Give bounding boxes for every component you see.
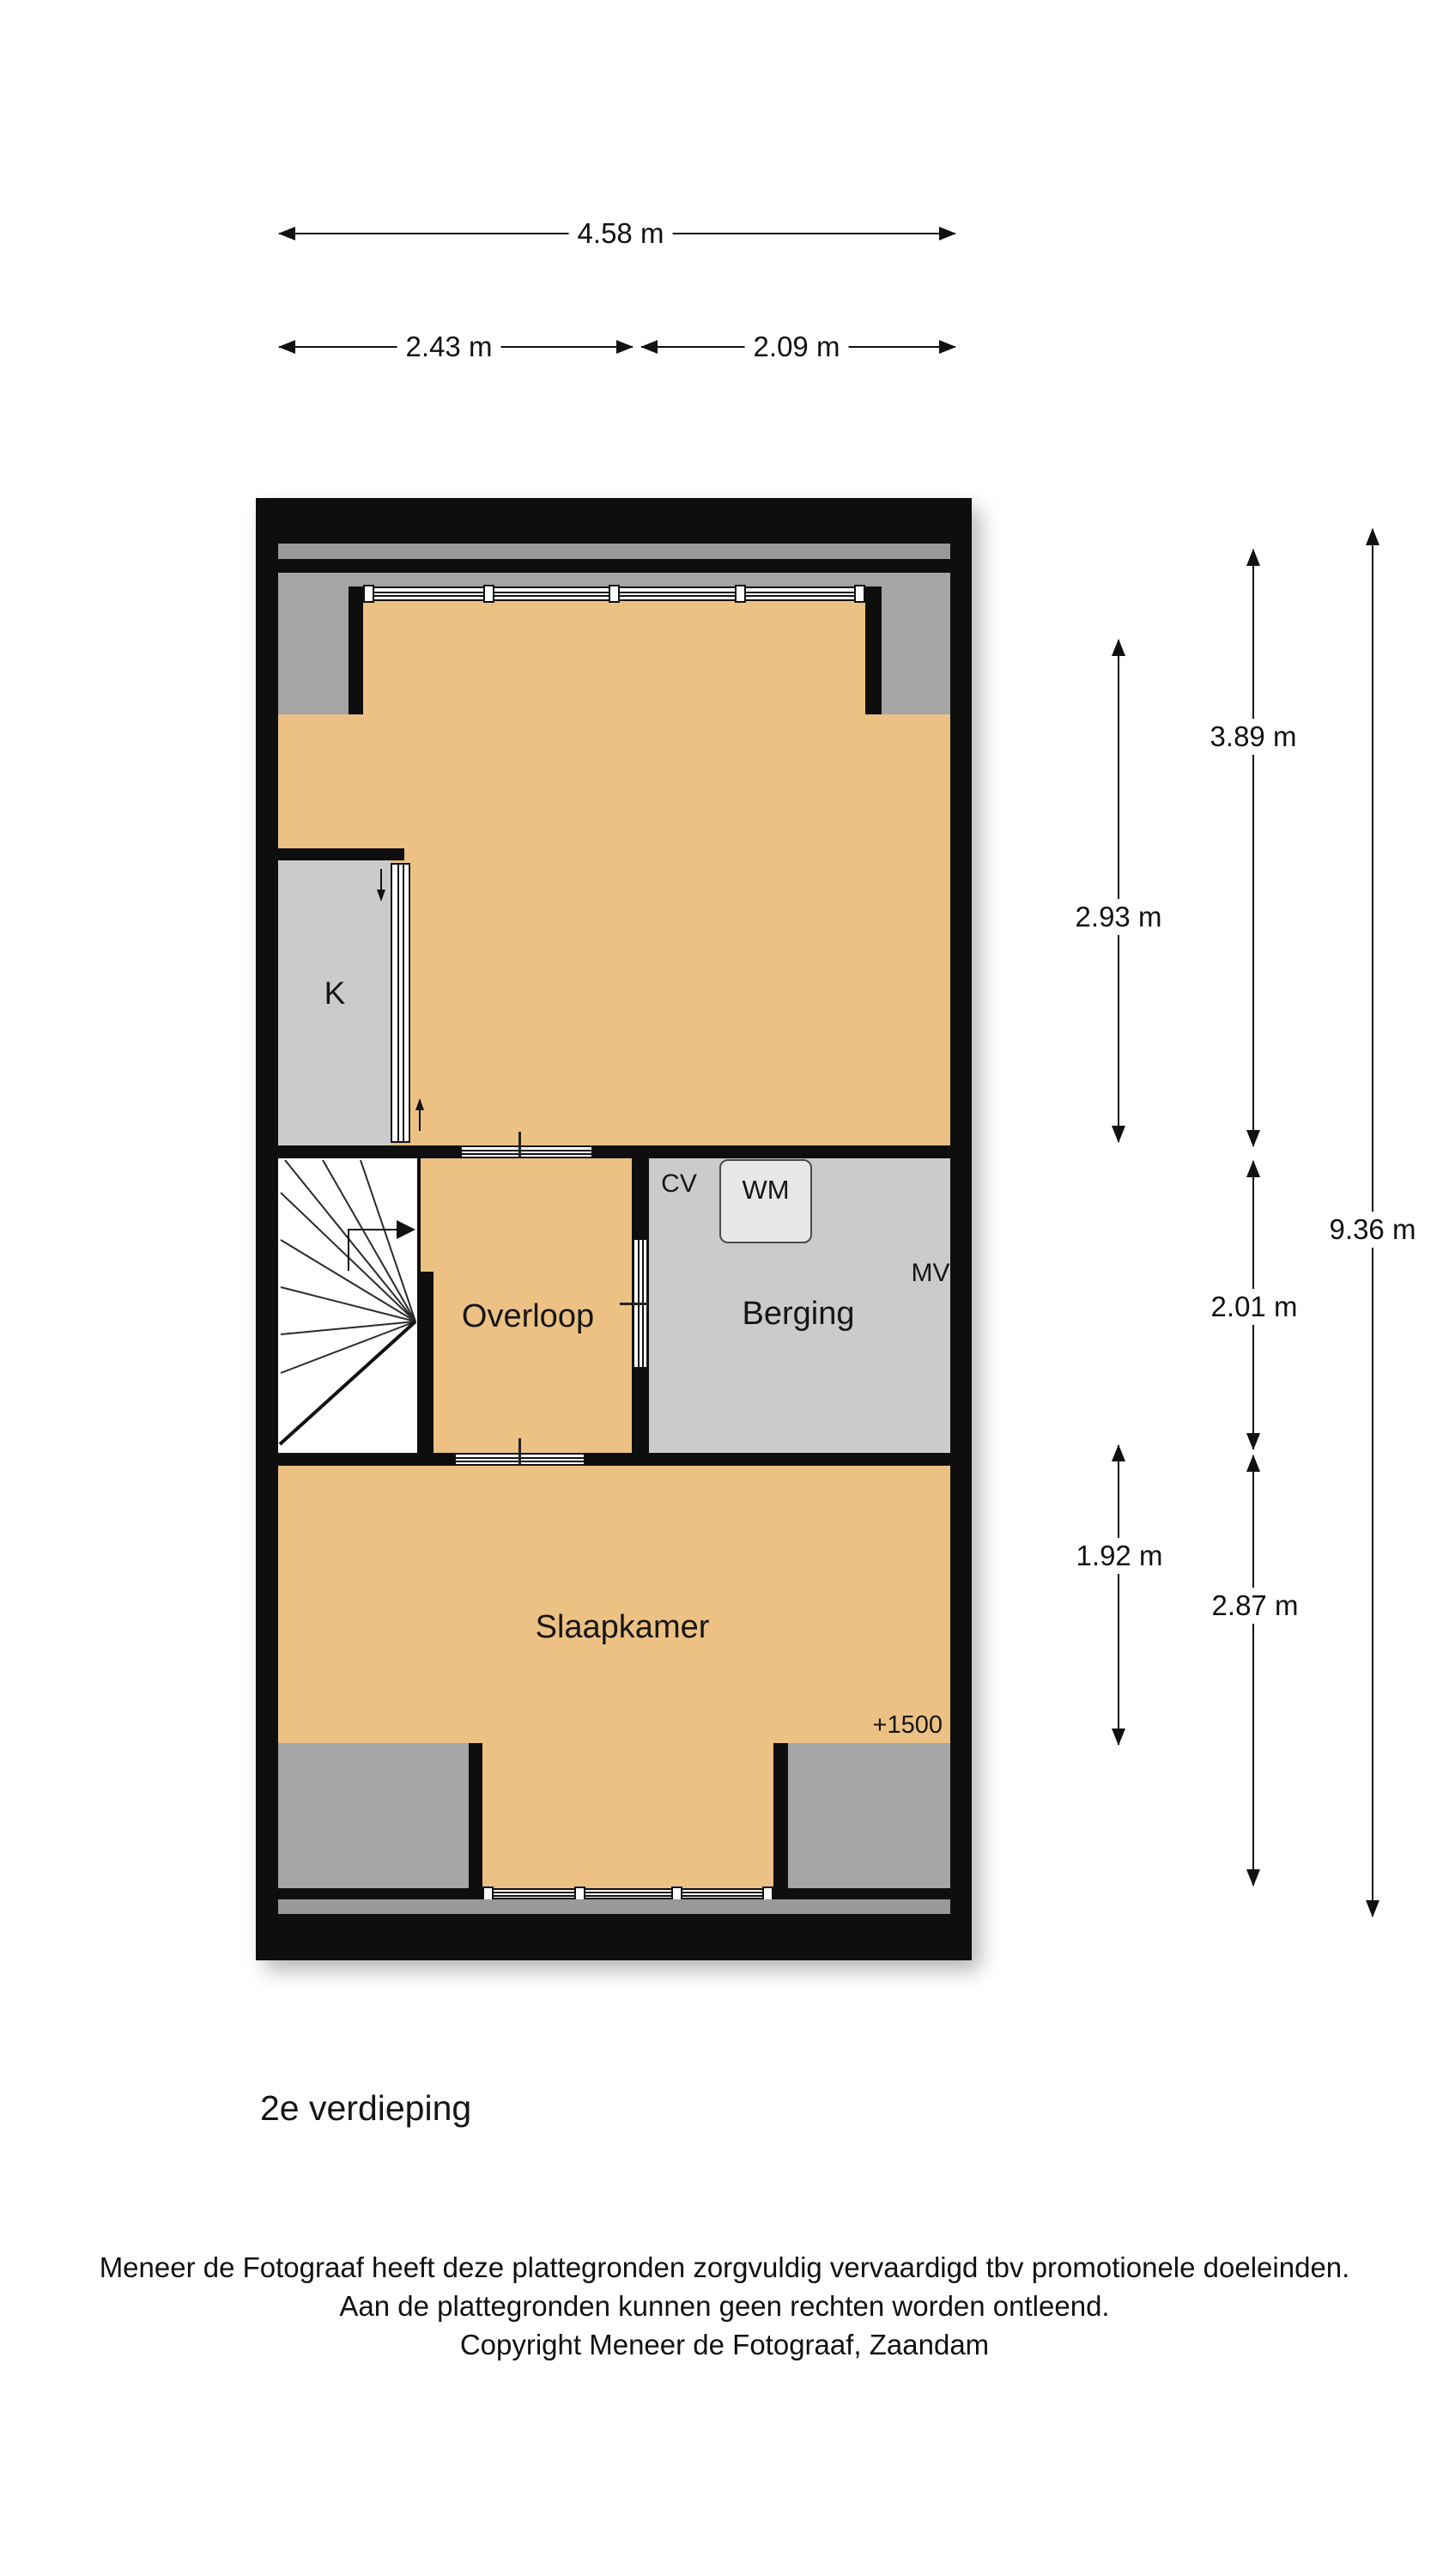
dim-arrow-bedroom-top-inner <box>1118 640 1119 1142</box>
room-label-storage: Berging <box>743 1296 855 1333</box>
low-ceiling-zone-bottom-left <box>278 1743 469 1888</box>
slide-direction-down-icon <box>374 867 388 903</box>
wall-stub-top-left <box>349 586 363 714</box>
roof-edge-band-bottom <box>278 1899 950 1914</box>
room-label-landing: Overloop <box>462 1298 594 1335</box>
window-top-divider <box>483 585 494 603</box>
floorplan-page: 4.58 m 2.43 m 2.09 m +1500 Slaapkamer K <box>0 0 1449 2576</box>
dim-arrow-bedroom-bottom <box>1252 1455 1254 1886</box>
washing-machine: WM <box>719 1159 812 1243</box>
stairs <box>278 1158 417 1453</box>
dim-label-width-total: 4.58 m <box>569 216 673 252</box>
low-ceiling-zone-bottom-right <box>788 1743 950 1888</box>
room-label-bedroom-bottom: Slaapkamer <box>536 1609 710 1646</box>
dim-label-landing: 2.01 m <box>1203 1289 1307 1325</box>
wall-stub-bottom-right <box>773 1743 788 1899</box>
ceiling-height-marker-bottom: +1500 <box>873 1711 943 1740</box>
dim-label-bedroom-bottom: 2.87 m <box>1203 1588 1307 1624</box>
dim-label-bedroom-bottom-inner: 1.92 m <box>1068 1538 1172 1574</box>
dim-label-width-right: 2.09 m <box>745 329 849 365</box>
mechanical-ventilation-label: MV <box>912 1259 950 1288</box>
wall-stub-bottom-left <box>469 1743 482 1899</box>
window-top-cap-right <box>854 585 865 603</box>
window-top-cap-left <box>363 585 374 603</box>
roof-edge-band-top <box>278 544 950 559</box>
footer-line-1: Meneer de Fotograaf heeft deze plattegro… <box>0 2248 1449 2287</box>
washing-machine-label: WM <box>721 1175 810 1206</box>
door-bedroom-top <box>460 1145 593 1158</box>
dim-arrow-bedroom-bottom-inner <box>1118 1445 1119 1745</box>
slide-direction-up-icon <box>413 1097 427 1133</box>
wall-middle-bottom <box>278 1453 950 1466</box>
dim-label-bedroom-top: 3.89 m <box>1202 719 1306 755</box>
dim-label-width-left: 2.43 m <box>397 329 501 365</box>
footer-line-3: Copyright Meneer de Fotograaf, Zaandam <box>0 2325 1449 2364</box>
floorplan-drawing: +1500 Slaapkamer K <box>256 498 972 1960</box>
wall-closet-top <box>278 848 404 860</box>
wall-middle-top <box>278 1145 950 1158</box>
floor-title: 2e verdieping <box>260 2088 471 2129</box>
closet-sliding-door <box>391 863 410 1143</box>
window-top-divider <box>735 585 746 603</box>
dim-arrow-bedroom-top <box>1252 550 1254 1146</box>
footer-line-2: Aan de plattegronden kunnen geen rechten… <box>0 2287 1449 2325</box>
room-label-closet: K <box>324 975 346 1012</box>
stairs-direction-arrow <box>397 1220 415 1239</box>
central-heating-label: CV <box>661 1170 697 1199</box>
footer: Meneer de Fotograaf heeft deze plattegro… <box>0 2248 1449 2364</box>
dim-label-bedroom-top-inner: 2.93 m <box>1067 899 1171 935</box>
dim-label-height-total: 9.36 m <box>1321 1212 1425 1248</box>
wall-stub-top-right <box>865 586 882 714</box>
window-top-divider <box>609 585 620 603</box>
room-bedroom-top-upper <box>363 601 865 714</box>
window-bottom <box>482 1888 773 1899</box>
wall-stairs-landing-lower <box>417 1272 433 1466</box>
